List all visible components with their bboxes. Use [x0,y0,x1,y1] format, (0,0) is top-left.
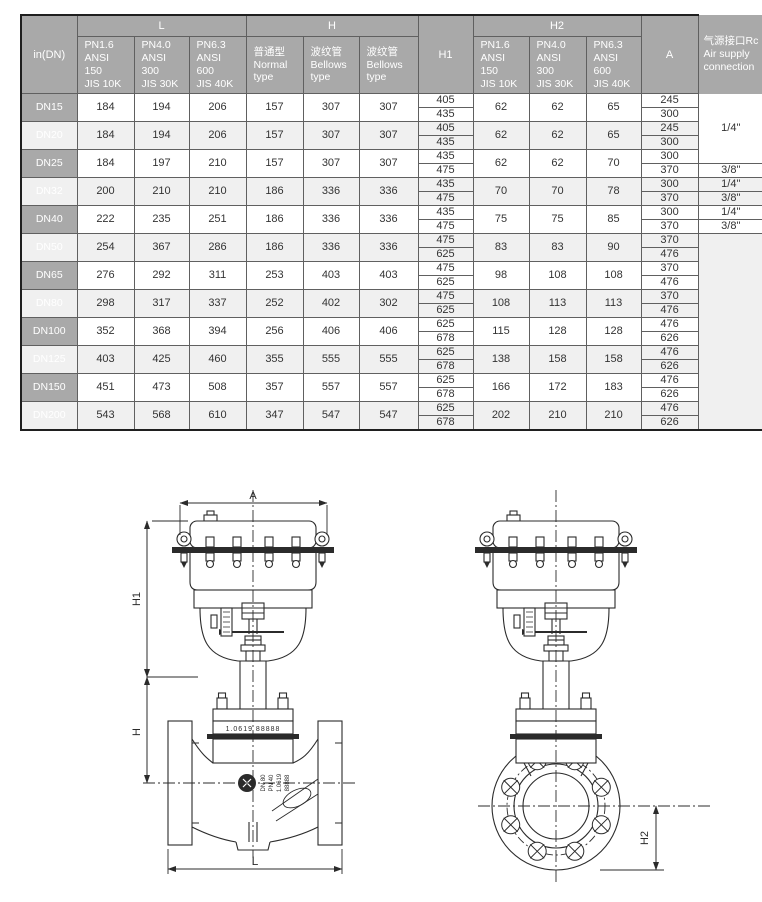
value-cell: 83 [529,234,586,262]
value-cell: 357 [246,374,303,402]
value-cell: 435 [418,206,473,220]
row-label: DN80 [21,290,77,318]
value-cell: 62 [473,94,529,122]
col-header-H2-pn63: PN6.3 ANSI 600 JIS 40K [586,37,641,94]
air-connection-cell: 1/4" [698,94,762,164]
value-cell: 555 [359,346,418,374]
value-cell: 166 [473,374,529,402]
value-cell: 300 [641,206,698,220]
table-row: DN125403425460355555555625138158158476 [21,346,762,360]
value-cell: 206 [189,94,246,122]
value-cell: 307 [303,150,359,178]
value-cell: 70 [529,178,586,206]
value-cell: 475 [418,192,473,206]
value-cell: 194 [134,94,189,122]
table-row: DN80298317337252402302475108113113370 [21,290,762,304]
value-cell: 256 [246,318,303,346]
value-cell: 425 [134,346,189,374]
value-cell: 476 [641,318,698,332]
value-cell: 75 [529,206,586,234]
value-cell: 435 [418,136,473,150]
value-cell: 113 [586,290,641,318]
col-header-L-pn63: PN6.3 ANSI 600 JIS 40K [189,37,246,94]
value-cell: 476 [641,276,698,290]
row-label: DN15 [21,94,77,122]
value-cell: 307 [359,94,418,122]
row-label: DN125 [21,346,77,374]
value-cell: 298 [77,290,134,318]
value-cell: 435 [418,108,473,122]
value-cell: 317 [134,290,189,318]
value-cell: 75 [473,206,529,234]
col-header-H-bellows2: 波纹管 Bellows type [359,37,418,94]
dim-label-A: A [249,490,257,502]
row-label: DN32 [21,178,77,206]
value-cell: 157 [246,122,303,150]
value-cell: 62 [473,122,529,150]
value-cell: 625 [418,248,473,262]
value-cell: 625 [418,346,473,360]
value-cell: 678 [418,360,473,374]
value-cell: 70 [473,178,529,206]
table-row: DN20184194206157307307405626265245 [21,122,762,136]
value-cell: 235 [134,206,189,234]
value-cell: 128 [529,318,586,346]
value-cell: 206 [189,122,246,150]
value-cell: 370 [641,234,698,248]
value-cell: 475 [418,234,473,248]
valve-drawings: 1.0619 88888 DN 80 PN 40 1.0619 88888 [0,478,762,902]
value-cell: 65 [586,94,641,122]
value-cell: 355 [246,346,303,374]
value-cell: 370 [641,262,698,276]
col-header-L-pn40: PN4.0 ANSI 300 JIS 30K [134,37,189,94]
value-cell: 252 [246,290,303,318]
value-cell: 210 [189,150,246,178]
air-connection-cell: 3/8" [698,192,762,206]
dim-label-H: H [131,728,143,736]
value-cell: 202 [473,402,529,431]
value-cell: 65 [586,122,641,150]
col-header-H1: H1 [418,15,473,94]
value-cell: 78 [586,178,641,206]
value-cell: 625 [418,374,473,388]
value-cell: 403 [359,262,418,290]
value-cell: 210 [586,402,641,431]
value-cell: 286 [189,234,246,262]
value-cell: 370 [641,192,698,206]
value-cell: 254 [77,234,134,262]
value-cell: 128 [586,318,641,346]
dimension-table: in(DN) L H H1 H2 A 气源接口Rc Air supply con… [20,14,762,431]
value-cell: 307 [359,122,418,150]
value-cell: 678 [418,332,473,346]
col-header-H2-pn40: PN4.0 ANSI 300 JIS 30K [529,37,586,94]
value-cell: 476 [641,374,698,388]
row-label: DN150 [21,374,77,402]
value-cell: 210 [529,402,586,431]
value-cell: 108 [529,262,586,290]
value-cell: 475 [418,262,473,276]
value-cell: 476 [641,346,698,360]
value-cell: 158 [586,346,641,374]
value-cell: 184 [77,150,134,178]
value-cell: 406 [303,318,359,346]
value-cell: 403 [303,262,359,290]
value-cell: 403 [77,346,134,374]
row-label: DN100 [21,318,77,346]
dim-label-H1: H1 [131,592,143,606]
value-cell: 451 [77,374,134,402]
group-header-row: in(DN) L H H1 H2 A 气源接口Rc Air supply con… [21,15,762,37]
value-cell: 435 [418,178,473,192]
value-cell: 625 [418,318,473,332]
value-cell: 172 [529,374,586,402]
value-cell: 370 [641,290,698,304]
value-cell: 625 [418,304,473,318]
air-connection-cell [698,234,762,431]
value-cell: 157 [246,94,303,122]
value-cell: 245 [641,94,698,108]
value-cell: 108 [473,290,529,318]
value-cell: 336 [303,234,359,262]
value-cell: 476 [641,248,698,262]
value-cell: 210 [189,178,246,206]
value-cell: 475 [418,220,473,234]
value-cell: 367 [134,234,189,262]
value-cell: 678 [418,416,473,431]
value-cell: 158 [529,346,586,374]
value-cell: 222 [77,206,134,234]
value-cell: 197 [134,150,189,178]
row-label: DN50 [21,234,77,262]
value-cell: 85 [586,206,641,234]
valve-drawings-svg: 1.0619 88888 DN 80 PN 40 1.0619 88888 [0,478,762,902]
air-connection-cell: 1/4" [698,206,762,220]
value-cell: 625 [418,402,473,416]
value-cell: 115 [473,318,529,346]
value-cell: 370 [641,164,698,178]
col-header-air-supply: 气源接口Rc Air supply connection [698,15,762,94]
value-cell: 62 [529,150,586,178]
value-cell: 557 [303,374,359,402]
value-cell: 113 [529,290,586,318]
col-group-H: H [246,15,418,37]
value-cell: 307 [303,122,359,150]
value-cell: 302 [359,290,418,318]
value-cell: 473 [134,374,189,402]
row-label: DN65 [21,262,77,290]
table-row: DN6527629231125340340347598108108370 [21,262,762,276]
table-row: DN50254367286186336336475838390370 [21,234,762,248]
col-header-dn: in(DN) [21,15,77,94]
value-cell: 186 [246,206,303,234]
value-cell: 184 [77,94,134,122]
value-cell: 62 [473,150,529,178]
value-cell: 402 [303,290,359,318]
table-row: DN25184197210157307307435626270300 [21,150,762,164]
value-cell: 300 [641,108,698,122]
value-cell: 460 [189,346,246,374]
row-label: DN40 [21,206,77,234]
value-cell: 368 [134,318,189,346]
value-cell: 336 [359,234,418,262]
value-cell: 406 [359,318,418,346]
value-cell: 352 [77,318,134,346]
body-shoulder-right [293,739,318,763]
value-cell: 336 [359,178,418,206]
value-cell: 678 [418,388,473,402]
air-connection-cell: 1/4" [698,178,762,192]
value-cell: 626 [641,332,698,346]
value-cell: 292 [134,262,189,290]
col-header-H-bellows1: 波纹管 Bellows type [303,37,359,94]
value-cell: 200 [77,178,134,206]
value-cell: 547 [359,402,418,431]
value-cell: 336 [359,206,418,234]
value-cell: 253 [246,262,303,290]
value-cell: 435 [418,150,473,164]
value-cell: 405 [418,94,473,108]
value-cell: 555 [303,346,359,374]
value-cell: 157 [246,150,303,178]
value-cell: 300 [641,178,698,192]
col-group-H2: H2 [473,15,641,37]
value-cell: 186 [246,234,303,262]
value-cell: 626 [641,416,698,431]
value-cell: 300 [641,150,698,164]
value-cell: 300 [641,136,698,150]
value-cell: 347 [246,402,303,431]
value-cell: 307 [303,94,359,122]
col-group-L: L [77,15,246,37]
value-cell: 543 [77,402,134,431]
row-label: DN200 [21,402,77,431]
value-cell: 276 [77,262,134,290]
col-header-H2-pn16: PN1.6 ANSI 150 JIS 10K [473,37,529,94]
value-cell: 108 [586,262,641,290]
value-cell: 70 [586,150,641,178]
col-header-H-normal: 普通型 Normal type [246,37,303,94]
table-row: DN100352368394256406406625115128128476 [21,318,762,332]
value-cell: 475 [418,290,473,304]
value-cell: 184 [77,122,134,150]
value-cell: 625 [418,276,473,290]
value-cell: 475 [418,164,473,178]
dim-label-L: L [252,854,259,868]
value-cell: 245 [641,122,698,136]
value-cell: 183 [586,374,641,402]
value-cell: 405 [418,122,473,136]
table-row: DN200543568610347547547625202210210476 [21,402,762,416]
value-cell: 307 [359,150,418,178]
value-cell: 336 [303,178,359,206]
value-cell: 62 [529,94,586,122]
value-cell: 626 [641,388,698,402]
value-cell: 547 [303,402,359,431]
dim-label-H2: H2 [639,831,651,845]
row-label: DN20 [21,122,77,150]
value-cell: 476 [641,402,698,416]
value-cell: 508 [189,374,246,402]
value-cell: 370 [641,220,698,234]
value-cell: 311 [189,262,246,290]
value-cell: 138 [473,346,529,374]
value-cell: 568 [134,402,189,431]
col-header-A: A [641,15,698,94]
value-cell: 476 [641,304,698,318]
value-cell: 557 [359,374,418,402]
value-cell: 337 [189,290,246,318]
value-cell: 83 [473,234,529,262]
col-header-L-pn16: PN1.6 ANSI 150 JIS 10K [77,37,134,94]
table-row: DN151841942061573073074056262652451/4" [21,94,762,108]
table-row: DN150451473508357557557625166172183476 [21,374,762,388]
value-cell: 610 [189,402,246,431]
row-label: DN25 [21,150,77,178]
value-cell: 210 [134,178,189,206]
value-cell: 394 [189,318,246,346]
value-cell: 186 [246,178,303,206]
value-cell: 336 [303,206,359,234]
value-cell: 626 [641,360,698,374]
air-connection-cell: 3/8" [698,220,762,234]
value-cell: 194 [134,122,189,150]
value-cell: 90 [586,234,641,262]
table-header: in(DN) L H H1 H2 A 气源接口Rc Air supply con… [21,15,762,94]
table-row: DN322002102101863363364357070783001/4" [21,178,762,192]
value-cell: 62 [529,122,586,150]
table-row: DN402222352511863363364357575853001/4" [21,206,762,220]
value-cell: 98 [473,262,529,290]
table-body: DN151841942061573073074056262652451/4"43… [21,94,762,431]
value-cell: 251 [189,206,246,234]
air-connection-cell: 3/8" [698,164,762,178]
